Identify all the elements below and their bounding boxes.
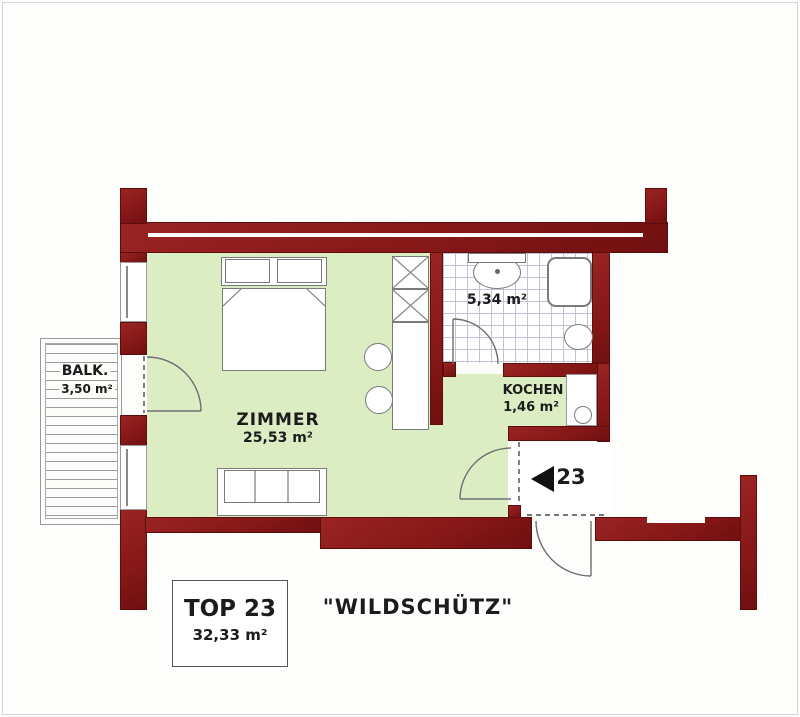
balcony-label: BALK. (60, 364, 111, 379)
zimmer-label: ZIMMER (236, 411, 319, 430)
entry-door-arc (536, 521, 591, 576)
floor-plan: ZIMMER 25,53 m² 5,34 m² KOCHEN 1,46 m² B… (0, 0, 800, 717)
zimmer-area-label: 25,53 m² (243, 431, 313, 446)
balcony-area-label: 3,50 m² (59, 383, 115, 396)
bed-fold-marks (223, 289, 325, 306)
bath-door-arc (453, 319, 498, 364)
kitchen-area-label: 1,46 m² (503, 401, 559, 415)
opening-dashes (144, 356, 606, 515)
balcony-door-arc (147, 357, 201, 411)
project-name-label: "WILDSCHÜTZ" (323, 596, 513, 619)
bath-area-label: 5,34 m² (467, 293, 527, 308)
kitchen-label: KOCHEN (503, 384, 564, 398)
sofa-dividers (255, 470, 288, 503)
wardrobe-x-marks (393, 257, 428, 321)
unit-area-label: 32,33 m² (173, 626, 287, 644)
unit-label: TOP 23 (173, 596, 287, 622)
entry-arrow-icon (531, 466, 554, 492)
entry-number-label: 23 (556, 466, 585, 489)
doors (147, 319, 591, 576)
unit-info-box: TOP 23 32,33 m² (172, 580, 288, 667)
room-door-arc (460, 448, 511, 499)
